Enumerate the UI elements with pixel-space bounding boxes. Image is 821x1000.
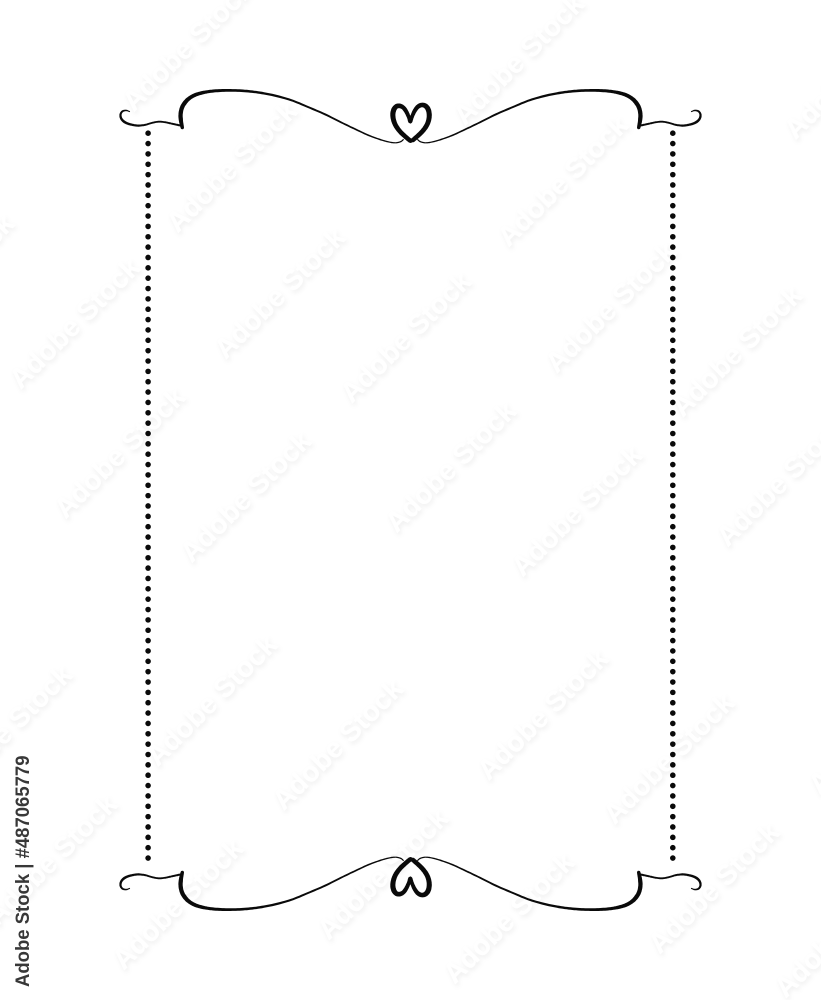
svg-text:Adobe Stock | #487065779: Adobe Stock | #487065779 (13, 755, 35, 987)
